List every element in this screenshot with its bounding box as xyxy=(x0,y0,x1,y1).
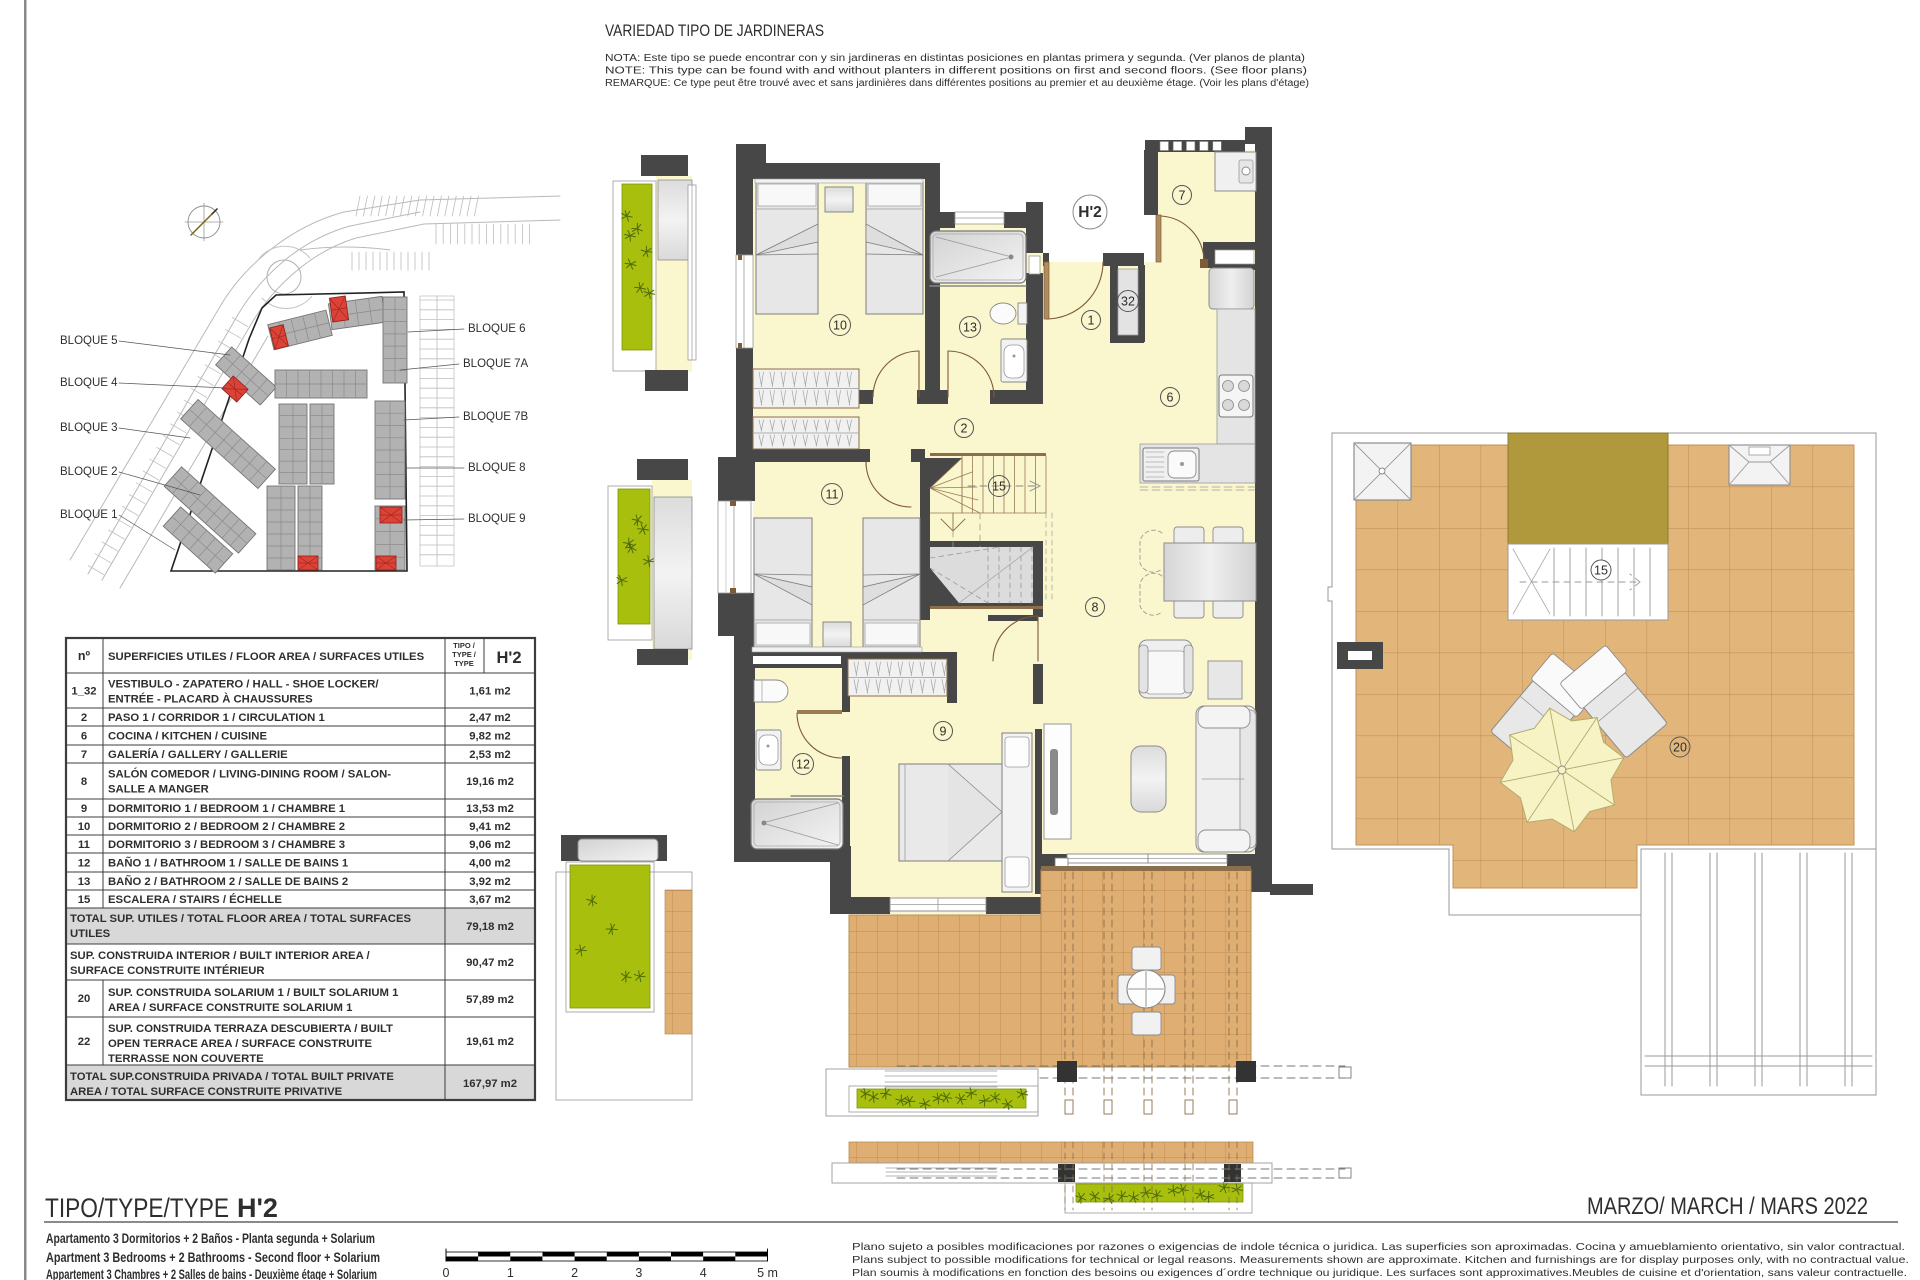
svg-text:AREA / SURFACE CONSTRUITE SOLA: AREA / SURFACE CONSTRUITE SOLARIUM 1 xyxy=(108,1002,352,1014)
svg-text:SUPERFICIES UTILES / FLOOR ARE: SUPERFICIES UTILES / FLOOR AREA / SURFAC… xyxy=(108,651,425,663)
svg-text:9,06 m2: 9,06 m2 xyxy=(469,839,510,851)
svg-text:10: 10 xyxy=(78,821,91,833)
svg-text:3,92 m2: 3,92 m2 xyxy=(469,876,510,888)
svg-text:PASO 1 / CORRIDOR 1 / CIRCULAT: PASO 1 / CORRIDOR 1 / CIRCULATION 1 xyxy=(108,712,325,724)
svg-text:13,53 m2: 13,53 m2 xyxy=(466,803,514,815)
svg-text:11: 11 xyxy=(826,487,839,501)
svg-text:BLOQUE 3: BLOQUE 3 xyxy=(60,422,118,434)
svg-text:32: 32 xyxy=(1121,294,1135,308)
svg-text:8: 8 xyxy=(81,776,87,788)
svg-text:TYPE: TYPE xyxy=(454,659,474,668)
svg-text:79,18 m2: 79,18 m2 xyxy=(466,921,514,933)
svg-text:nº: nº xyxy=(78,649,91,663)
svg-text:13: 13 xyxy=(78,876,91,888)
svg-text:20: 20 xyxy=(1673,741,1687,755)
svg-text:7: 7 xyxy=(1179,188,1186,202)
svg-text:COCINA / KITCHEN / CUISINE: COCINA / KITCHEN / CUISINE xyxy=(108,731,267,743)
svg-text:SURFACE CONSTRUITE INTÉRIEUR: SURFACE CONSTRUITE INTÉRIEUR xyxy=(70,964,265,977)
svg-text:Apartment 3 Bedrooms + 2 Bathr: Apartment 3 Bedrooms + 2 Bathrooms - Sec… xyxy=(46,1250,380,1265)
svg-text:UTILES: UTILES xyxy=(70,928,111,940)
svg-text:DORMITORIO 2 / BEDROOM 2 / CHA: DORMITORIO 2 / BEDROOM 2 / CHAMBRE 2 xyxy=(108,821,345,833)
svg-text:4,00 m2: 4,00 m2 xyxy=(469,858,510,870)
svg-text:TIPO /: TIPO / xyxy=(453,641,476,650)
svg-text:VESTIBULO - ZAPATERO / HALL -: VESTIBULO - ZAPATERO / HALL - SHOE LOCKE… xyxy=(108,679,379,691)
svg-text:NOTA: Este tipo se puede encon: NOTA: Este tipo se puede encontrar con y… xyxy=(605,53,1305,64)
svg-text:BLOQUE 7B: BLOQUE 7B xyxy=(463,411,529,423)
svg-text:90,47 m2: 90,47 m2 xyxy=(466,957,514,969)
svg-text:2: 2 xyxy=(961,421,968,435)
svg-text:3: 3 xyxy=(635,1266,642,1280)
svg-text:DORMITORIO 1 / BEDROOM 1 / CHA: DORMITORIO 1 / BEDROOM 1 / CHAMBRE 1 xyxy=(108,803,345,815)
svg-text:6: 6 xyxy=(1167,390,1174,404)
svg-text:BAÑO 2 / BATHROOM 2 / SALLE DE: BAÑO 2 / BATHROOM 2 / SALLE DE BAINS 2 xyxy=(108,875,348,888)
svg-text:9,41 m2: 9,41 m2 xyxy=(469,821,510,833)
svg-text:19,61 m2: 19,61 m2 xyxy=(466,1036,514,1048)
svg-text:REMARQUE: Ce type peut être tr: REMARQUE: Ce type peut être trouvé avec … xyxy=(605,78,1309,89)
svg-text:TOTAL SUP. UTILES / TOTAL FLOO: TOTAL SUP. UTILES / TOTAL FLOOR AREA / T… xyxy=(70,913,411,925)
svg-text:BLOQUE 6: BLOQUE 6 xyxy=(468,323,526,335)
svg-text:BLOQUE 5: BLOQUE 5 xyxy=(60,335,118,347)
svg-text:8: 8 xyxy=(1092,600,1099,614)
svg-text:BLOQUE 1: BLOQUE 1 xyxy=(60,509,118,521)
svg-text:NOTE: This type can be found w: NOTE: This type can be found with and wi… xyxy=(605,66,1307,77)
svg-text:BLOQUE 7A: BLOQUE 7A xyxy=(463,358,529,370)
svg-text:BLOQUE 4: BLOQUE 4 xyxy=(60,377,118,389)
svg-text:2,47 m2: 2,47 m2 xyxy=(469,712,510,724)
svg-text:H'2: H'2 xyxy=(1078,204,1102,221)
svg-text:4: 4 xyxy=(700,1266,707,1280)
svg-text:2,53 m2: 2,53 m2 xyxy=(469,749,510,761)
svg-text:13: 13 xyxy=(963,320,977,334)
svg-text:11: 11 xyxy=(78,839,90,851)
svg-text:2: 2 xyxy=(81,712,87,724)
svg-text:AREA / TOTAL SURFACE CONSTRUIT: AREA / TOTAL SURFACE CONSTRUITE PRIVATIV… xyxy=(70,1086,343,1098)
svg-text:TYPE /: TYPE / xyxy=(452,650,477,659)
svg-text:7: 7 xyxy=(81,749,87,761)
svg-text:0: 0 xyxy=(443,1266,450,1280)
svg-text:57,89 m2: 57,89 m2 xyxy=(466,994,514,1006)
svg-text:19,16 m2: 19,16 m2 xyxy=(466,776,514,788)
svg-text:15: 15 xyxy=(992,479,1006,493)
svg-text:9: 9 xyxy=(940,724,947,738)
svg-text:Appartement 3 Chambres + 2 Sal: Appartement 3 Chambres + 2 Salles de bai… xyxy=(46,1267,377,1280)
svg-text:12: 12 xyxy=(796,757,810,771)
svg-text:9,82 m2: 9,82 m2 xyxy=(469,731,510,743)
svg-text:DORMITORIO 3 / BEDROOM 3 / CHA: DORMITORIO 3 / BEDROOM 3 / CHAMBRE 3 xyxy=(108,839,345,851)
svg-text:20: 20 xyxy=(78,993,91,1005)
svg-text:TOTAL SUP.CONSTRUIDA PRIVADA /: TOTAL SUP.CONSTRUIDA PRIVADA / TOTAL BUI… xyxy=(70,1071,394,1083)
svg-text:167,97 m2: 167,97 m2 xyxy=(463,1078,517,1090)
svg-text:SUP. CONSTRUIDA SOLARIUM 1 / B: SUP. CONSTRUIDA SOLARIUM 1 / BUILT SOLAR… xyxy=(108,987,398,999)
svg-text:BLOQUE 2: BLOQUE 2 xyxy=(60,466,118,478)
svg-text:22: 22 xyxy=(78,1036,91,1048)
svg-text:BLOQUE 9: BLOQUE 9 xyxy=(468,513,526,525)
svg-text:1_32: 1_32 xyxy=(71,686,96,698)
svg-text:1,61 m2: 1,61 m2 xyxy=(469,686,510,698)
svg-text:GALERÍA / GALLERY / GALLERIE: GALERÍA / GALLERY / GALLERIE xyxy=(108,748,288,761)
svg-text:12: 12 xyxy=(78,858,91,870)
svg-text:SALÓN COMEDOR / LIVING-DINING: SALÓN COMEDOR / LIVING-DINING ROOM / SAL… xyxy=(108,768,391,781)
svg-text:15: 15 xyxy=(1594,564,1608,578)
svg-text:SUP. CONSTRUIDA TERRAZA DESCUB: SUP. CONSTRUIDA TERRAZA DESCUBIERTA / BU… xyxy=(108,1023,393,1035)
svg-text:6: 6 xyxy=(81,731,87,743)
svg-text:Plan soumis à modifications en: Plan soumis à modifications en fonction … xyxy=(852,1267,1907,1279)
svg-text:10: 10 xyxy=(833,318,847,332)
svg-text:BLOQUE 8: BLOQUE 8 xyxy=(468,462,526,474)
svg-text:TIPO/TYPE/TYPE: TIPO/TYPE/TYPE xyxy=(45,1193,229,1223)
svg-text:BAÑO 1 / BATHROOM 1 / SALLE DE: BAÑO 1 / BATHROOM 1 / SALLE DE BAINS 1 xyxy=(108,857,348,870)
svg-text:3,67 m2: 3,67 m2 xyxy=(469,894,510,906)
svg-text:Apartamento 3 Dormitorios + 2: Apartamento 3 Dormitorios + 2 Baños - Pl… xyxy=(46,1231,375,1246)
svg-text:2: 2 xyxy=(571,1266,578,1280)
svg-text:ESCALERA / STAIRS / ÉCHELLE: ESCALERA / STAIRS / ÉCHELLE xyxy=(108,893,282,906)
svg-text:1: 1 xyxy=(1088,313,1095,327)
svg-text:5 m: 5 m xyxy=(757,1266,778,1280)
svg-text:9: 9 xyxy=(81,803,87,815)
svg-text:Plano sujeto a posibles modifi: Plano sujeto a posibles modificaciones p… xyxy=(852,1242,1905,1253)
svg-text:OPEN TERRACE AREA / SURFACE C: OPEN TERRACE AREA / SURFACE CONSTRUITE xyxy=(108,1038,372,1050)
svg-text:TERRASSE NON COUVERTE: TERRASSE NON COUVERTE xyxy=(108,1053,264,1065)
svg-text:Plans subject to possible modi: Plans subject to possible modifications … xyxy=(852,1255,1909,1266)
svg-text:1: 1 xyxy=(507,1266,514,1280)
svg-text:MARZO/ MARCH / MARS 2022: MARZO/ MARCH / MARS 2022 xyxy=(1587,1193,1868,1220)
svg-text:H'2: H'2 xyxy=(237,1193,278,1223)
svg-text:SUP. CONSTRUIDA INTERIOR / BUI: SUP. CONSTRUIDA INTERIOR / BUILT INTERIO… xyxy=(70,950,370,962)
svg-text:VARIEDAD TIPO DE JARDINERAS: VARIEDAD TIPO DE JARDINERAS xyxy=(605,22,824,40)
svg-text:SALLE A MANGER: SALLE A MANGER xyxy=(108,784,209,796)
svg-text:H'2: H'2 xyxy=(496,649,521,667)
svg-text:15: 15 xyxy=(78,894,91,906)
svg-text:ENTRÉE - PLACARD À CHAUSSURES: ENTRÉE - PLACARD À CHAUSSURES xyxy=(108,693,313,706)
